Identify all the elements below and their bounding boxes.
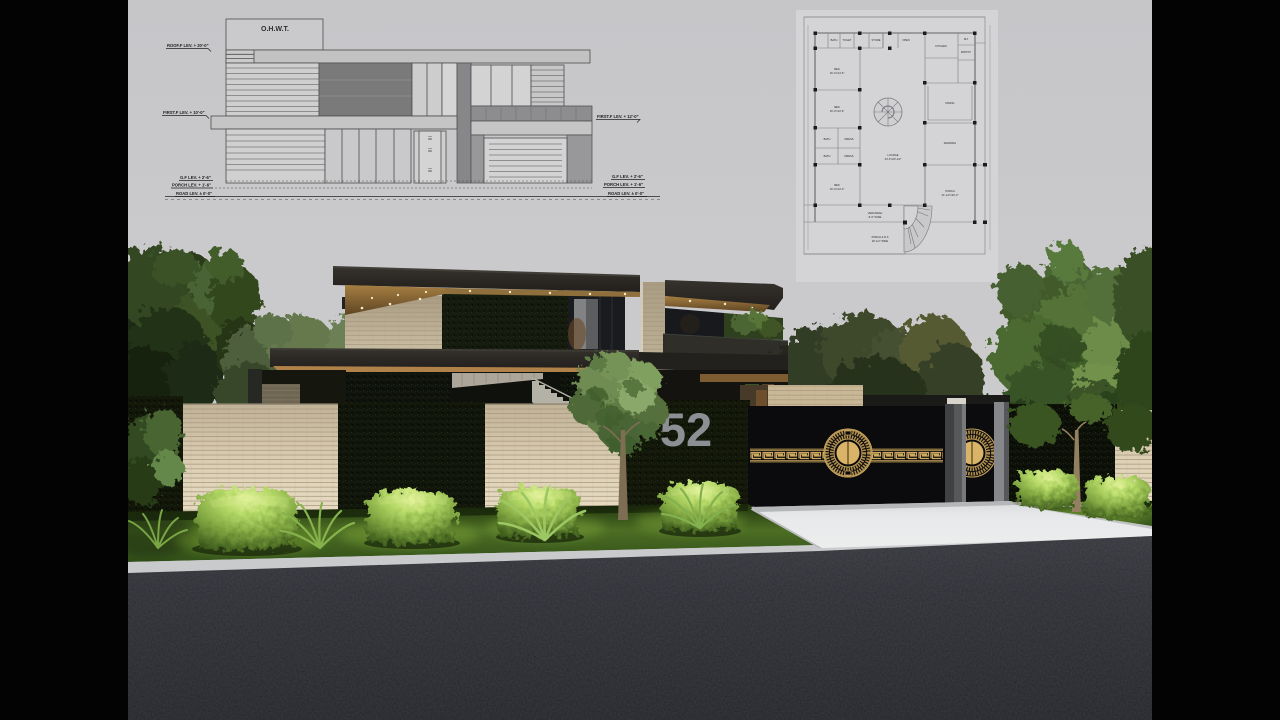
svg-text:KITCHEN: KITCHEN: [935, 44, 947, 48]
svg-text:FIRST.F LEV. + 12'-0": FIRST.F LEV. + 12'-0": [597, 114, 639, 119]
svg-text:BED: BED: [834, 67, 839, 71]
svg-text:VERANDAH: VERANDAH: [868, 211, 883, 215]
svg-text:PANTRY: PANTRY: [961, 50, 972, 54]
svg-text:DRESS: DRESS: [845, 154, 854, 158]
svg-text:☰: ☰: [428, 148, 433, 154]
svg-text:ROAD LEV. ± 0'-0": ROAD LEV. ± 0'-0": [608, 191, 644, 196]
svg-text:☰: ☰: [428, 136, 433, 142]
svg-text:BATH: BATH: [831, 38, 838, 42]
svg-text:FIRST.F LEV. + 10'-0": FIRST.F LEV. + 10'-0": [163, 110, 205, 115]
svg-text:STORE: STORE: [872, 38, 881, 42]
svg-text:BED: BED: [834, 105, 839, 109]
svg-text:DRESS: DRESS: [845, 137, 854, 141]
svg-text:SLT: SLT: [964, 37, 969, 41]
svg-text:BATH: BATH: [824, 154, 831, 158]
svg-text:G.F LEV. + 2'-6": G.F LEV. + 2'-6": [180, 175, 211, 180]
svg-text:24'-0"x20'-1/2": 24'-0"x20'-1/2": [885, 157, 902, 161]
svg-text:ROAD LEV. ± 0'-0": ROAD LEV. ± 0'-0": [176, 191, 212, 196]
svg-text:PORCH LEV. + 1'-6": PORCH LEV. + 1'-6": [604, 182, 643, 187]
svg-text:G.F LEV. + 2'-6": G.F LEV. + 2'-6": [612, 174, 643, 179]
svg-text:16'-0"x13'-6": 16'-0"x13'-6": [830, 109, 845, 113]
svg-text:PORCH & R.S: PORCH & R.S: [872, 235, 889, 239]
svg-text:BATH: BATH: [824, 137, 831, 141]
svg-text:LOUNGE: LOUNGE: [888, 153, 899, 157]
svg-text:21'-1/2"x20'-0": 21'-1/2"x20'-0": [942, 193, 959, 197]
svg-text:DRAWING: DRAWING: [944, 141, 956, 145]
svg-text:16'-0"x13'-0": 16'-0"x13'-0": [830, 187, 845, 191]
svg-text:16'-0"x14'-6": 16'-0"x14'-6": [830, 71, 845, 75]
svg-text:ROOF.F LEV. + 20'-0": ROOF.F LEV. + 20'-0": [167, 43, 209, 48]
svg-text:8'-0" WIDE: 8'-0" WIDE: [869, 215, 882, 219]
svg-text:26'-1/2" WIDE: 26'-1/2" WIDE: [872, 239, 889, 243]
svg-text:DINING: DINING: [945, 101, 954, 105]
svg-text:TOILET: TOILET: [842, 38, 851, 42]
svg-text:PORCH LEV. + 1'-6": PORCH LEV. + 1'-6": [172, 183, 211, 188]
svg-text:BED: BED: [834, 183, 839, 187]
svg-text:PORCH: PORCH: [945, 189, 954, 193]
svg-text:O.H.W.T.: O.H.W.T.: [261, 26, 289, 33]
svg-text:OPEN: OPEN: [902, 38, 909, 42]
svg-text:☰: ☰: [428, 168, 433, 174]
